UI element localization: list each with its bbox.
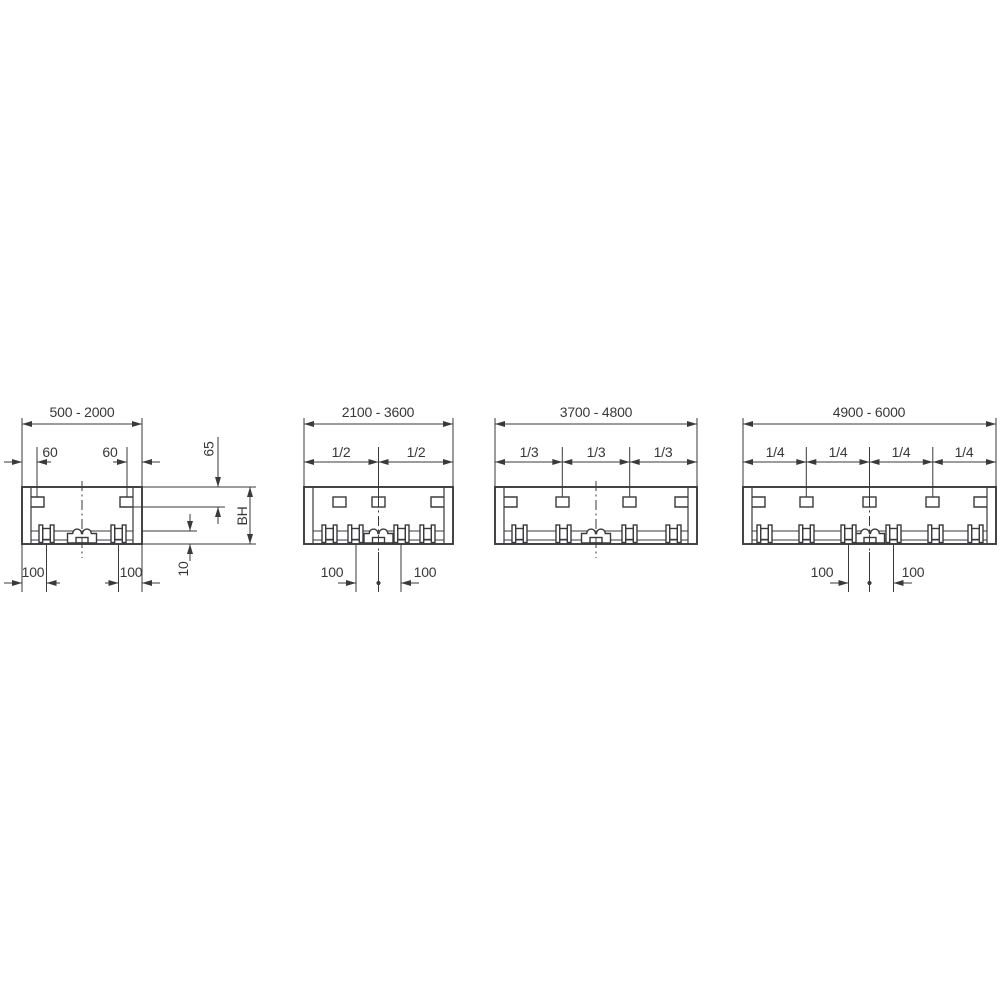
- roller-clip: [666, 525, 681, 543]
- fraction-dimensions: 1/2 1/2: [304, 444, 453, 497]
- mounting-tab: [504, 497, 517, 507]
- roller-clip: [841, 525, 856, 543]
- fraction-label: 1/4: [829, 444, 848, 460]
- fraction-label: 1/2: [407, 444, 426, 460]
- roller-clip: [348, 525, 363, 543]
- bottom-dim-label-right: 100: [120, 564, 143, 580]
- bottom-dimensions: 100 100: [4, 544, 160, 592]
- door-width-dimension-drawing: 500 - 2000 60 60: [0, 0, 1000, 1000]
- roller-clip: [556, 525, 571, 543]
- panel-2100-3600: 2100 - 3600 1/2 1/2: [304, 404, 453, 592]
- mounting-tab: [752, 497, 765, 507]
- roller-clip: [322, 525, 337, 543]
- fraction-label: 1/4: [892, 444, 911, 460]
- roller-clip: [757, 525, 772, 543]
- range-dim-label: 500 - 2000: [50, 404, 115, 420]
- roller-clip: [39, 525, 54, 543]
- fraction-label: 1/3: [520, 444, 539, 460]
- roller-clip: [928, 525, 943, 543]
- mounting-tab: [623, 497, 636, 507]
- mounting-tab: [120, 497, 133, 507]
- fraction-label: 1/3: [654, 444, 673, 460]
- box-height-label: BH: [234, 506, 250, 525]
- roller-clip: [799, 525, 814, 543]
- side-dimensions: 65 BH 10: [133, 437, 256, 577]
- top-offset-label: 65: [201, 441, 217, 457]
- fraction-label: 1/4: [955, 444, 974, 460]
- roller-clip: [886, 525, 901, 543]
- bottom-dim-label-right: 100: [414, 564, 437, 580]
- range-dim-label: 3700 - 4800: [560, 404, 633, 420]
- edge-dim-label-left: 60: [42, 444, 58, 460]
- bottom-dimensions: 100 100: [811, 544, 925, 592]
- fraction-label: 1/3: [587, 444, 606, 460]
- mounting-tab: [675, 497, 688, 507]
- door-box: [495, 481, 697, 558]
- panel-3700-4800: 3700 - 4800 1/3 1/3 1/3: [495, 404, 697, 558]
- range-dim-label: 2100 - 3600: [342, 404, 415, 420]
- roller-clip: [420, 525, 435, 543]
- edge-dim-label-right: 60: [102, 444, 118, 460]
- center-dot: [867, 581, 871, 585]
- roller-clip: [111, 525, 126, 543]
- fraction-label: 1/4: [766, 444, 785, 460]
- fraction-label: 1/2: [332, 444, 351, 460]
- door-box: [22, 481, 142, 558]
- mounting-tab: [431, 497, 444, 507]
- technical-drawing-canvas: 500 - 2000 60 60: [0, 0, 1000, 1000]
- bottom-offset-label: 10: [175, 561, 191, 577]
- roller-clip: [512, 525, 527, 543]
- bottom-dim-label-left: 100: [22, 564, 45, 580]
- roller-clip: [622, 525, 637, 543]
- bottom-dim-label-left: 100: [321, 564, 344, 580]
- mounting-tab: [31, 497, 44, 507]
- center-dot: [376, 581, 380, 585]
- door-box: [743, 487, 996, 592]
- range-dim-label: 4900 - 6000: [833, 404, 906, 420]
- bottom-dim-label-left: 100: [811, 564, 834, 580]
- roller-clip: [968, 525, 983, 543]
- range-dimension: 500 - 2000: [22, 404, 142, 487]
- mounting-tab: [926, 497, 939, 507]
- roller-clip: [394, 525, 409, 543]
- mounting-tab: [556, 497, 569, 507]
- mounting-tab: [333, 497, 346, 507]
- mounting-tab: [800, 497, 813, 507]
- bottom-dim-label-right: 100: [902, 564, 925, 580]
- mounting-tab: [974, 497, 987, 507]
- panel-4900-6000: 4900 - 6000 1/4 1/4 1/4 1/4: [743, 404, 996, 592]
- panel-500-2000: 500 - 2000 60 60: [4, 404, 256, 592]
- fraction-dimensions: 1/4 1/4 1/4 1/4: [743, 444, 996, 497]
